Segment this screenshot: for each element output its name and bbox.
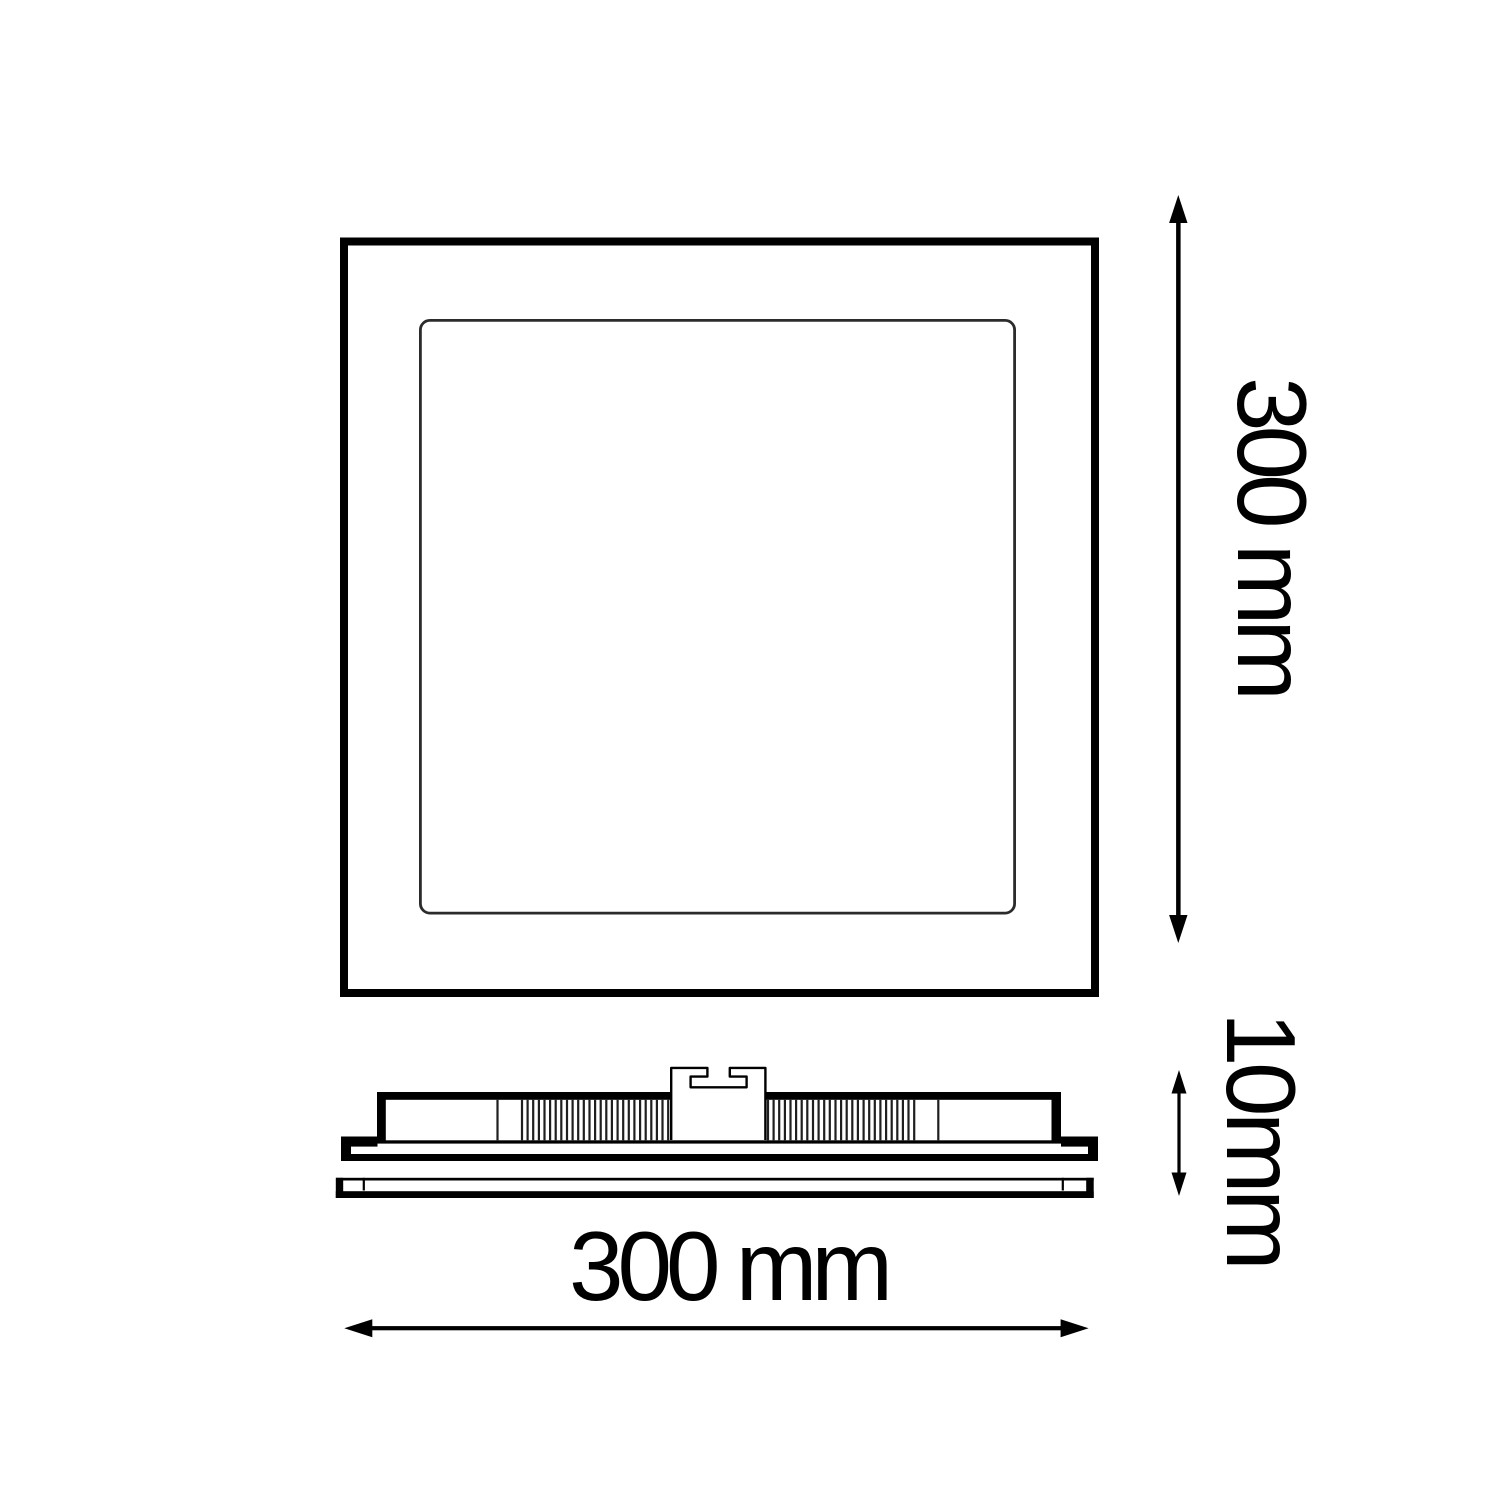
svg-text:300 mm: 300 mm (569, 1211, 887, 1321)
svg-text:10mm: 10mm (1206, 1012, 1316, 1266)
svg-text:300 mm: 300 mm (1217, 377, 1327, 695)
